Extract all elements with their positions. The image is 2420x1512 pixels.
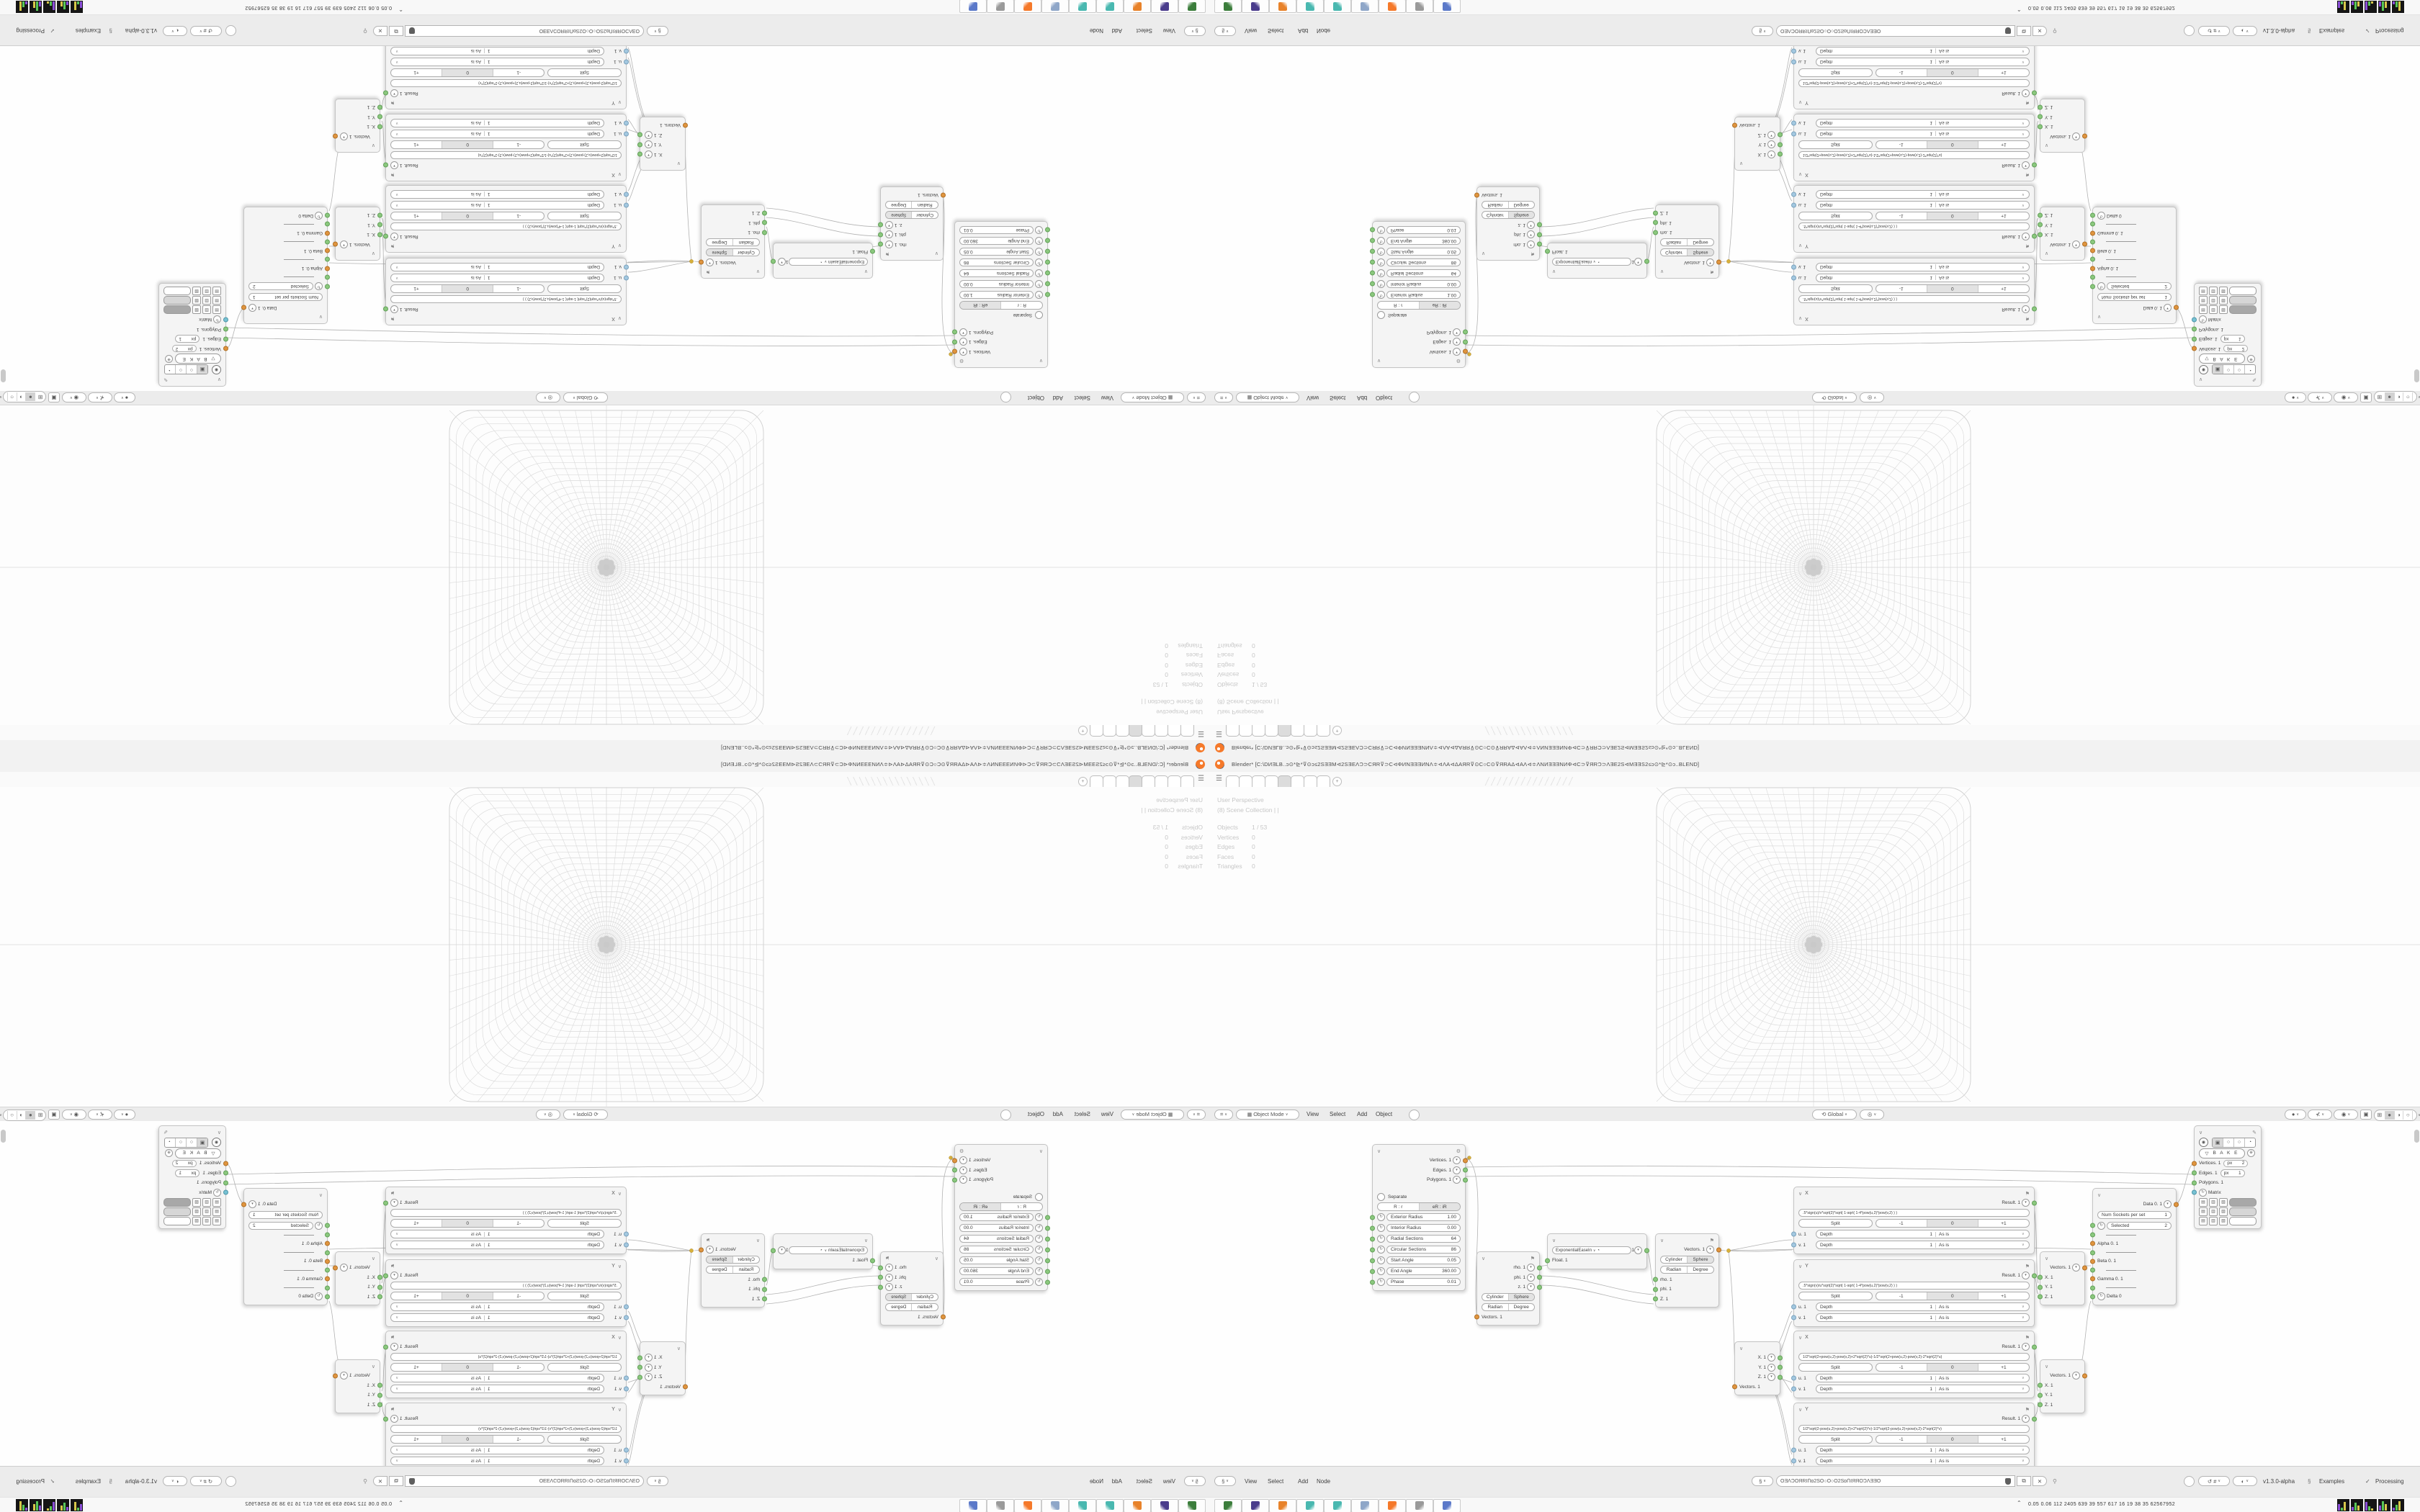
tab-3[interactable] xyxy=(1252,724,1265,737)
xray-toggle[interactable]: ◉∨ xyxy=(2334,393,2358,403)
fake-user-shield-icon[interactable] xyxy=(2005,1478,2011,1485)
socket[interactable] xyxy=(1045,271,1050,276)
value-field[interactable]: Radial Sections64 xyxy=(1386,1235,1461,1243)
socket[interactable] xyxy=(624,1459,629,1464)
value-field[interactable]: Phase0.01 xyxy=(1386,226,1461,234)
color-swatch[interactable] xyxy=(2229,1207,2257,1216)
socket[interactable] xyxy=(1791,121,1796,126)
socket[interactable] xyxy=(2090,266,2095,271)
hamburger-menu-icon[interactable]: ☰ xyxy=(1216,775,1222,783)
socket[interactable] xyxy=(1370,1215,1375,1220)
editor-type-button[interactable]: ⌗∨ xyxy=(1214,1110,1233,1120)
taskbar-app-4[interactable] xyxy=(1096,0,1124,14)
taskbar-app-9[interactable] xyxy=(1433,1499,1461,1512)
menu-select[interactable]: Select xyxy=(1330,1111,1345,1117)
socket[interactable] xyxy=(2090,257,2095,262)
easing-selector[interactable]: ExponentialEaseIn∨◔ xyxy=(789,1246,868,1255)
socket[interactable] xyxy=(637,142,642,147)
socket[interactable] xyxy=(762,1297,767,1302)
formula-node-y1[interactable]: ∨Y⚑Result. 1▾.5*sign(v)/u*sqrt(2)*sqrt( … xyxy=(385,1259,627,1327)
socket[interactable] xyxy=(325,1233,330,1238)
socket[interactable] xyxy=(377,1295,382,1300)
value-field[interactable]: Phase0.01 xyxy=(1386,1278,1461,1286)
socket[interactable] xyxy=(1370,282,1375,287)
socket[interactable] xyxy=(1045,282,1050,287)
bake-button[interactable]: ▽B A K E xyxy=(2199,1148,2245,1158)
menu-node[interactable]: Node xyxy=(1090,27,1103,34)
socket[interactable] xyxy=(1537,1275,1542,1280)
socket[interactable] xyxy=(383,234,388,239)
socket[interactable] xyxy=(325,230,330,235)
socket[interactable] xyxy=(878,1275,883,1280)
socket[interactable] xyxy=(878,232,883,237)
vector-out-node[interactable]: ∨X. 1▾Y. 1▾Z. 1▾Vectors. 1 xyxy=(1734,117,1780,171)
new-tab-button[interactable]: + xyxy=(1332,777,1342,786)
socket[interactable] xyxy=(624,1243,629,1248)
socket[interactable] xyxy=(2082,134,2087,139)
socket[interactable] xyxy=(2090,275,2095,280)
bake-button[interactable]: ▽B A K E xyxy=(2199,354,2245,364)
socket[interactable] xyxy=(383,1200,388,1205)
taskbar-app-4[interactable] xyxy=(1296,1499,1324,1512)
taskbar-app-2[interactable] xyxy=(1151,1499,1178,1512)
value-field[interactable]: Phase0.01 xyxy=(959,226,1034,234)
vector-in-node-2[interactable]: ∨Vectors. 1▾X. 1Y. 1Z. 1 xyxy=(2040,1359,2085,1413)
socket[interactable] xyxy=(2090,284,2095,289)
socket[interactable] xyxy=(878,1265,883,1270)
socket[interactable] xyxy=(325,284,330,289)
node-editor[interactable]: ∨⚙Vertices. 1▾Edges. 1▾Polygons. 1▾Separ… xyxy=(1210,46,2420,391)
tab-3[interactable] xyxy=(1252,775,1265,788)
viewer-draw-node[interactable]: ∨✎◉▣○○◔▽B A K E⊕Vertices. 1px2Edges. 1px… xyxy=(158,1125,226,1229)
formula-node-y2[interactable]: ∨Y⚑Result. 1▾1/2*sqrt(2-pow(u,2)+pow(v,2… xyxy=(1793,1403,2035,1466)
socket[interactable] xyxy=(377,104,382,109)
socket[interactable] xyxy=(1045,1269,1050,1274)
socket[interactable] xyxy=(325,275,330,280)
menu-view[interactable]: View xyxy=(1163,1478,1175,1485)
unlink-button[interactable]: ✕ xyxy=(373,26,387,36)
taskbar-app-3[interactable] xyxy=(1269,0,1296,14)
menu-view[interactable]: View xyxy=(1163,27,1175,34)
socket[interactable] xyxy=(1370,271,1375,276)
list-params-node[interactable]: ∨Data 0. 1▾Num Sockets per set1↻Selected… xyxy=(243,207,328,325)
render-preview-button[interactable]: ▣ xyxy=(2360,393,2372,403)
render-preview-button[interactable]: ▣ xyxy=(48,1110,60,1120)
tray-graph-thumbnail[interactable] xyxy=(43,1,55,14)
socket[interactable] xyxy=(1370,1258,1375,1263)
easing-node[interactable]: ∨ExponentialEaseIn∨◔ 1 ▾Float. 1 xyxy=(1547,243,1647,279)
proportional-widget[interactable]: ◐∨ xyxy=(163,26,187,36)
node-editor-type-button[interactable]: §∨ xyxy=(1214,1476,1236,1486)
value-field[interactable]: Selected2 xyxy=(248,1222,313,1230)
socket[interactable] xyxy=(2090,248,2095,253)
socket[interactable] xyxy=(2038,1383,2043,1388)
taskbar-app-5[interactable] xyxy=(1069,1499,1096,1512)
socket[interactable] xyxy=(223,327,228,332)
vector-out-node[interactable]: ∨X. 1▾Y. 1▾Z. 1▾Vectors. 1 xyxy=(1734,1341,1780,1395)
tray-graph-thumbnail[interactable] xyxy=(71,1,83,14)
shading-mode-switch[interactable]: ⊞●◑○∨ xyxy=(3,392,46,403)
formula-field[interactable]: .5*sign(v)/u*sqrt(2)*sqrt( 1-sqrt( 1-4*p… xyxy=(1798,222,2030,230)
bake-button[interactable]: ▽B A K E xyxy=(175,354,221,364)
socket[interactable] xyxy=(878,242,883,247)
menu-view[interactable]: View xyxy=(1307,1111,1319,1117)
menu-view[interactable]: View xyxy=(1101,395,1113,401)
socket[interactable] xyxy=(223,346,228,351)
checkbox[interactable] xyxy=(1035,311,1043,319)
tab-8[interactable] xyxy=(1090,724,1103,737)
tray-graph-thumbnail[interactable] xyxy=(30,1499,42,1511)
socket[interactable] xyxy=(325,1259,330,1264)
socket[interactable] xyxy=(941,192,946,197)
node-editor-type-button[interactable]: §∨ xyxy=(1184,1476,1206,1486)
node-tree-name-field[interactable]: OƎΛƆOЯRIՈɒ2SO○O○O2SɒՈIЯЯOƆΛƎƎO xyxy=(405,25,644,37)
socket[interactable] xyxy=(223,1190,228,1195)
node-tree-name-field[interactable]: OƎΛƆOЯRIՈɒ2SO○O○O2SɒՈIЯЯOƆΛƎƎO xyxy=(405,1475,644,1487)
tab-5[interactable] xyxy=(1278,775,1291,788)
socket[interactable] xyxy=(952,349,957,354)
value-field[interactable]: End Angle360.00 xyxy=(1386,1267,1461,1275)
value-field[interactable]: Num Sockets per set1 xyxy=(2097,294,2172,302)
taskbar-app-8[interactable] xyxy=(987,0,1014,14)
socket[interactable] xyxy=(241,1202,246,1207)
tab-1[interactable] xyxy=(1180,724,1194,737)
socket[interactable] xyxy=(941,1315,946,1320)
vector-in-node-2[interactable]: ∨Vectors. 1▾X. 1Y. 1Z. 1 xyxy=(335,1359,380,1413)
socket[interactable] xyxy=(2192,1190,2197,1195)
value-field[interactable]: Radial Sections64 xyxy=(959,1235,1034,1243)
socket[interactable] xyxy=(1791,265,1796,270)
easing-node[interactable]: ∨ExponentialEaseIn∨◔ 1 ▾Float. 1 xyxy=(1547,1233,1647,1269)
socket[interactable] xyxy=(637,1374,642,1380)
value-field[interactable]: Exterior Radius1.00 xyxy=(959,291,1034,299)
socket[interactable] xyxy=(1474,192,1479,197)
color-swatch[interactable] xyxy=(2229,306,2257,315)
taskbar-app-3[interactable] xyxy=(1124,1499,1151,1512)
vector-polar-out-node[interactable]: ∨⚑rho. 1▾phi. 1▾z. 1▾CylinderSphereRadia… xyxy=(1476,186,1540,261)
socket[interactable] xyxy=(377,222,382,228)
socket[interactable] xyxy=(1370,292,1375,297)
unlink-button[interactable]: ✕ xyxy=(373,1476,387,1486)
socket[interactable] xyxy=(1045,1236,1050,1241)
formula-field[interactable]: .5*sign(v)/u*sqrt(2)*sqrt( 1-sqrt( 1-4*p… xyxy=(390,1282,622,1290)
taskbar-app-9[interactable] xyxy=(959,1499,987,1512)
examples-menu[interactable]: Examples xyxy=(2319,1478,2344,1485)
vector-out-node[interactable]: ∨X. 1▾Y. 1▾Z. 1▾Vectors. 1 xyxy=(640,117,686,171)
proportional-widget[interactable]: ◐∨ xyxy=(2233,26,2257,36)
socket[interactable] xyxy=(1644,259,1649,264)
tab-8[interactable] xyxy=(1317,724,1330,737)
menu-select[interactable]: Select xyxy=(1137,1478,1152,1485)
copy-button[interactable]: ⧉ xyxy=(2017,26,2031,36)
vector-polar-out-node[interactable]: ∨⚑rho. 1▾phi. 1▾z. 1▾CylinderSphereRadia… xyxy=(880,1251,944,1326)
socket[interactable] xyxy=(1791,1376,1796,1381)
snap-selector[interactable]: ◎∨ xyxy=(536,1110,560,1120)
socket[interactable] xyxy=(624,1448,629,1453)
socket[interactable] xyxy=(325,1223,330,1228)
socket[interactable] xyxy=(1463,1168,1468,1173)
xray-toggle[interactable]: ◉∨ xyxy=(62,393,86,403)
socket[interactable] xyxy=(624,1387,629,1392)
socket[interactable] xyxy=(1791,1305,1796,1310)
tray-expand-icon[interactable]: ⌃ xyxy=(2017,6,2022,11)
socket[interactable] xyxy=(1791,1243,1796,1248)
tray-graph-thumbnail[interactable] xyxy=(2337,1,2349,14)
formula-node-x1[interactable]: ∨X⚑Result. 1▾.5*sign(u)/v*sqrt(2)*sqrt( … xyxy=(385,1187,627,1254)
socket[interactable] xyxy=(1791,49,1796,54)
socket[interactable] xyxy=(325,1285,330,1290)
tray-graph-thumbnail[interactable] xyxy=(57,1499,69,1511)
menu-view[interactable]: View xyxy=(1245,1478,1257,1485)
menu-select[interactable]: Select xyxy=(1137,27,1152,34)
socket[interactable] xyxy=(1370,1225,1375,1230)
taskbar-app-5[interactable] xyxy=(1324,1499,1351,1512)
tray-graph-thumbnail[interactable] xyxy=(2351,1,2363,14)
overlays-toggle[interactable]: ⊀∨ xyxy=(2308,393,2332,403)
taskbar-app-1[interactable] xyxy=(1214,0,1242,14)
tab-1[interactable] xyxy=(1180,775,1194,788)
socket[interactable] xyxy=(1653,210,1658,215)
socket[interactable] xyxy=(241,305,246,310)
socket[interactable] xyxy=(1778,1355,1783,1360)
socket[interactable] xyxy=(2082,1373,2087,1378)
socket[interactable] xyxy=(1463,1158,1468,1163)
tab-3[interactable] xyxy=(1155,775,1168,788)
tray-graph-thumbnail[interactable] xyxy=(2365,1499,2377,1511)
node-editor-scrollbar[interactable] xyxy=(1,1130,6,1143)
value-field[interactable]: Start Angle0.05 xyxy=(959,1256,1034,1264)
viewer-draw-node[interactable]: ∨✎◉▣○○◔▽B A K E⊕Vertices. 1px2Edges. 1px… xyxy=(158,283,226,387)
viewport-3d[interactable]: User Perspective (8) Scene Collection | … xyxy=(1210,405,2420,725)
snap-widget[interactable]: ↺#∨ xyxy=(2198,1476,2230,1486)
formula-node-y1[interactable]: ∨Y⚑Result. 1▾.5*sign(v)/u*sqrt(2)*sqrt( … xyxy=(1793,186,2035,253)
formula-field[interactable]: 1/2*sqrt(2+pow(u,2)-pow(v,2)+2*sqrt(2)*u… xyxy=(1798,151,2030,159)
tray-graph-thumbnail[interactable] xyxy=(2378,1499,2390,1511)
socket[interactable] xyxy=(2192,1171,2197,1176)
value-field[interactable]: Interior Radius0.00 xyxy=(1386,280,1461,288)
socket[interactable] xyxy=(1045,1225,1050,1230)
socket[interactable] xyxy=(1791,203,1796,208)
value-field[interactable]: Start Angle0.05 xyxy=(1386,248,1461,256)
socket[interactable] xyxy=(333,134,338,139)
socket[interactable] xyxy=(624,49,629,54)
torus-node[interactable]: ∨⚙Vertices. 1▾Edges. 1▾Polygons. 1▾Separ… xyxy=(954,1144,1048,1291)
taskbar-app-3[interactable] xyxy=(1269,1499,1296,1512)
menu-object[interactable]: Object xyxy=(1028,1111,1044,1117)
socket[interactable] xyxy=(1791,1232,1796,1237)
socket[interactable] xyxy=(1791,192,1796,197)
value-field[interactable]: End Angle360.00 xyxy=(959,237,1034,245)
examples-menu[interactable]: Examples xyxy=(76,1478,101,1485)
viewport-header-circle-button[interactable] xyxy=(1000,392,1011,402)
socket[interactable] xyxy=(1045,228,1050,233)
xray-toggle[interactable]: ◉∨ xyxy=(62,1110,86,1120)
value-field[interactable]: Circular Sections86 xyxy=(1386,1246,1461,1254)
unlink-button[interactable]: ✕ xyxy=(2033,1476,2047,1486)
snap-selector[interactable]: ◎∨ xyxy=(1860,1110,1884,1120)
socket[interactable] xyxy=(1791,1448,1796,1453)
socket[interactable] xyxy=(1463,1177,1468,1182)
node-editor-scrollbar[interactable] xyxy=(2414,1130,2419,1143)
tab-4[interactable] xyxy=(1142,724,1155,737)
socket[interactable] xyxy=(383,307,388,312)
tab-6[interactable] xyxy=(1116,775,1129,788)
socket[interactable] xyxy=(2090,213,2095,218)
tray-graph-thumbnail[interactable] xyxy=(2337,1499,2349,1511)
socket[interactable] xyxy=(637,152,642,157)
socket[interactable] xyxy=(2038,212,2043,217)
unlink-button[interactable]: ✕ xyxy=(2033,26,2047,36)
mode-selector[interactable]: ▦Object Mode∨ xyxy=(1236,393,1299,403)
value-field[interactable]: Phase0.01 xyxy=(959,1278,1034,1286)
socket[interactable] xyxy=(1716,260,1721,265)
taskbar-app-6[interactable] xyxy=(1351,0,1379,14)
menu-object[interactable]: Object xyxy=(1028,395,1044,401)
pin-icon[interactable]: ⚲ xyxy=(363,27,367,34)
socket[interactable] xyxy=(377,1383,382,1388)
socket[interactable] xyxy=(1653,1297,1658,1302)
socket[interactable] xyxy=(637,132,642,138)
proportional-widget[interactable]: ◐∨ xyxy=(163,1476,187,1486)
socket[interactable] xyxy=(1732,1385,1737,1390)
torus-node[interactable]: ∨⚙Vertices. 1▾Edges. 1▾Polygons. 1▾Separ… xyxy=(1372,221,1466,368)
formula-node-x1[interactable]: ∨X⚑Result. 1▾.5*sign(u)/v*sqrt(2)*sqrt( … xyxy=(385,258,627,326)
tray-graph-thumbnail[interactable] xyxy=(2351,1499,2363,1511)
socket[interactable] xyxy=(762,1277,767,1282)
taskbar-app-3[interactable] xyxy=(1124,0,1151,14)
value-field[interactable]: Circular Sections86 xyxy=(959,1246,1034,1254)
socket[interactable] xyxy=(952,330,957,335)
socket[interactable] xyxy=(2032,234,2037,239)
color-swatch[interactable] xyxy=(163,1207,191,1216)
socket[interactable] xyxy=(1370,249,1375,254)
socket[interactable] xyxy=(1045,238,1050,243)
socket[interactable] xyxy=(2192,336,2197,341)
socket[interactable] xyxy=(637,1355,642,1360)
examples-menu[interactable]: Examples xyxy=(76,27,101,34)
socket[interactable] xyxy=(624,265,629,270)
tab-4[interactable] xyxy=(1265,775,1278,788)
socket[interactable] xyxy=(2090,1268,2095,1273)
tray-graph-thumbnail[interactable] xyxy=(2392,1499,2404,1511)
taskbar-app-7[interactable] xyxy=(1014,1499,1041,1512)
socket[interactable] xyxy=(952,1158,957,1163)
socket[interactable] xyxy=(2038,1284,2043,1290)
socket[interactable] xyxy=(2038,114,2043,120)
taskbar-app-6[interactable] xyxy=(1041,0,1069,14)
socket[interactable] xyxy=(2038,1295,2043,1300)
hamburger-menu-icon[interactable]: ☰ xyxy=(1198,775,1204,783)
examples-menu[interactable]: Examples xyxy=(2319,27,2344,34)
socket[interactable] xyxy=(223,336,228,341)
value-field[interactable]: Interior Radius0.00 xyxy=(959,1224,1034,1232)
node-editor[interactable]: ∨⚙Vertices. 1▾Edges. 1▾Polygons. 1▾Separ… xyxy=(0,46,1210,391)
tab-2[interactable] xyxy=(1168,775,1181,788)
socket[interactable] xyxy=(325,213,330,218)
tray-expand-icon[interactable]: ⌃ xyxy=(398,6,403,11)
tab-2[interactable] xyxy=(1239,724,1252,737)
socket[interactable] xyxy=(1537,242,1542,247)
node-editor[interactable]: ∨⚙Vertices. 1▾Edges. 1▾Polygons. 1▾Separ… xyxy=(1210,1121,2420,1466)
menu-add[interactable]: Add xyxy=(1112,27,1122,34)
taskbar-app-5[interactable] xyxy=(1069,0,1096,14)
tab-4[interactable] xyxy=(1142,775,1155,788)
copy-button[interactable]: ⧉ xyxy=(389,26,403,36)
socket[interactable] xyxy=(2090,1233,2095,1238)
fake-user-shield-icon[interactable] xyxy=(2005,28,2011,35)
socket[interactable] xyxy=(2174,305,2179,310)
gizmo-toggle[interactable]: ●∨ xyxy=(114,393,135,403)
editor-type-button[interactable]: ⌗∨ xyxy=(1187,1110,1206,1120)
color-swatch[interactable] xyxy=(163,287,191,296)
socket[interactable] xyxy=(2032,1344,2037,1349)
color-swatch[interactable] xyxy=(2229,1217,2257,1225)
value-field[interactable]: Exterior Radius1.00 xyxy=(1386,291,1461,299)
overlays-toggle[interactable]: ⊀∨ xyxy=(2308,1110,2332,1120)
socket[interactable] xyxy=(1370,228,1375,233)
socket[interactable] xyxy=(1537,1284,1542,1290)
vector-polar-out-node[interactable]: ∨⚑rho. 1▾phi. 1▾z. 1▾CylinderSphereRadia… xyxy=(880,186,944,261)
value-field[interactable]: End Angle360.00 xyxy=(959,1267,1034,1275)
node-tree-name-field[interactable]: OƎΛƆOЯRIՈɒ2SO○O○O2SɒՈIЯЯOƆΛƎƎO xyxy=(1776,1475,2015,1487)
socket[interactable] xyxy=(1653,1277,1658,1282)
formula-field[interactable]: .5*sign(u)/v*sqrt(2)*sqrt( 1-sqrt( 1-4*p… xyxy=(1798,295,2030,303)
pin-icon[interactable]: ⚲ xyxy=(2053,27,2057,34)
socket[interactable] xyxy=(2038,232,2043,237)
socket[interactable] xyxy=(383,1416,388,1421)
socket[interactable] xyxy=(2090,1223,2095,1228)
socket[interactable] xyxy=(223,1161,228,1166)
formula-field[interactable]: 1/2*sqrt(2-pow(u,2)+pow(v,2)+2*sqrt(2)*v… xyxy=(390,79,622,87)
render-preview-button[interactable]: ▣ xyxy=(2360,1110,2372,1120)
mode-selector[interactable]: ▦Object Mode∨ xyxy=(1121,393,1184,403)
checkbox[interactable] xyxy=(1377,311,1385,319)
window-title-bar[interactable]: Blender* [C:\DИƎLB..ɔ⊙*⊵*⊽⊙ɔ≤2SƎƎM⊲2SƎEΛ… xyxy=(1210,739,2420,756)
formula-node-x2[interactable]: ∨X⚑Result. 1▾1/2*sqrt(2+pow(u,2)-pow(v,2… xyxy=(1793,1331,2035,1398)
vector-polar-in-node[interactable]: ∨⚑Vectors. 1▾CylinderSphereRadianDegreer… xyxy=(701,1233,765,1308)
menu-view[interactable]: View xyxy=(1101,1111,1113,1117)
socket[interactable] xyxy=(2174,1202,2179,1207)
socket[interactable] xyxy=(1644,1248,1649,1253)
vector-polar-in-node[interactable]: ∨⚑Vectors. 1▾CylinderSphereRadianDegreer… xyxy=(1655,1233,1719,1308)
socket[interactable] xyxy=(1370,1236,1375,1241)
formula-field[interactable]: 1/2*sqrt(2-pow(u,2)+pow(v,2)+2*sqrt(2)*v… xyxy=(1798,1425,2030,1433)
easing-selector[interactable]: ExponentialEaseIn∨◔ xyxy=(1552,258,1631,266)
node-tree-name-field[interactable]: OƎΛƆOЯRIՈɒ2SO○O○O2SɒՈIЯЯOƆΛƎƎO xyxy=(1776,25,2015,37)
color-swatch[interactable] xyxy=(2229,1198,2257,1207)
tab-4[interactable] xyxy=(1265,724,1278,737)
socket[interactable] xyxy=(383,91,388,96)
tray-graph-thumbnail[interactable] xyxy=(2365,1,2377,14)
taskbar-app-8[interactable] xyxy=(1406,1499,1433,1512)
taskbar-app-1[interactable] xyxy=(1178,0,1206,14)
socket[interactable] xyxy=(1370,1279,1375,1284)
socket[interactable] xyxy=(333,242,338,247)
header-circle-button[interactable] xyxy=(2184,25,2195,36)
socket[interactable] xyxy=(624,203,629,208)
socket[interactable] xyxy=(1545,249,1550,254)
socket[interactable] xyxy=(1045,1215,1050,1220)
formula-node-x1[interactable]: ∨X⚑Result. 1▾.5*sign(u)/v*sqrt(2)*sqrt( … xyxy=(1793,258,2035,326)
socket[interactable] xyxy=(1463,349,1468,354)
socket[interactable] xyxy=(1045,1279,1050,1284)
taskbar-app-7[interactable] xyxy=(1014,0,1041,14)
value-field[interactable]: Selected2 xyxy=(2107,283,2172,291)
torus-node[interactable]: ∨⚙Vertices. 1▾Edges. 1▾Polygons. 1▾Separ… xyxy=(1372,1144,1466,1291)
viewport-3d[interactable]: User Perspective (8) Scene Collection | … xyxy=(0,405,1210,725)
socket[interactable] xyxy=(624,121,629,126)
vector-in-node-1[interactable]: ∨Vectors. 1▾X. 1Y. 1Z. 1 xyxy=(335,1251,380,1305)
